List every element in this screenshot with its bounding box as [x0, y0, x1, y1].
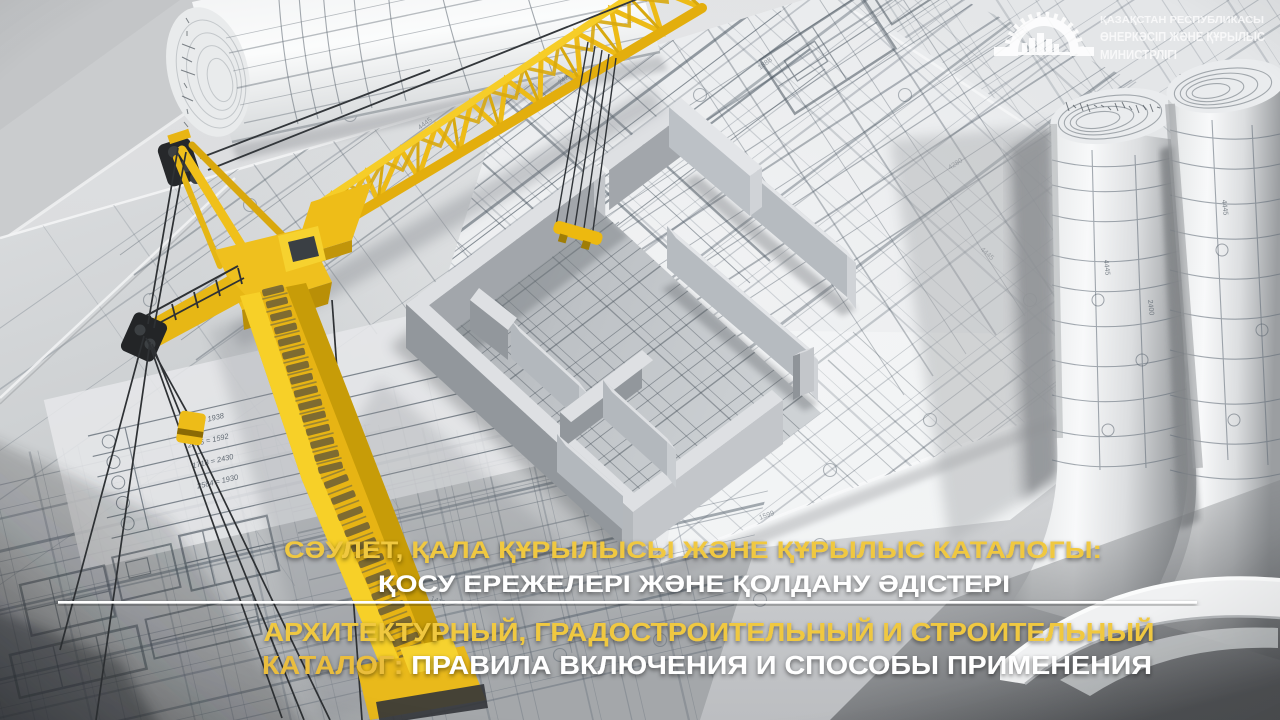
svg-text:ӨНЕРКӘСІП ЖӘНЕ ҚҰРЫЛЫС: ӨНЕРКӘСІП ЖӘНЕ ҚҰРЫЛЫС — [1100, 30, 1265, 44]
svg-text:МИНИСТРЛІГІ: МИНИСТРЛІГІ — [1100, 48, 1177, 62]
svg-text:ҚОСУ ЕРЕЖЕЛЕРІ ЖӘНЕ ҚОЛДАНУ ӘД: ҚОСУ ЕРЕЖЕЛЕРІ ЖӘНЕ ҚОЛДАНУ ӘДІСТЕРІ — [378, 571, 1010, 598]
svg-text:КАТАЛОГ: ПРАВИЛА ВКЛЮЧЕНИЯ И С: КАТАЛОГ: ПРАВИЛА ВКЛЮЧЕНИЯ И СПОСОБЫ ПРИ… — [262, 650, 1152, 680]
svg-text:ҚАЗАҚСТАН РЕСПУБЛИКАСЫ: ҚАЗАҚСТАН РЕСПУБЛИКАСЫ — [1100, 15, 1264, 26]
svg-text:АРХИТЕКТУРНЫЙ, ГРАДОСТРОИТЕЛЬН: АРХИТЕКТУРНЫЙ, ГРАДОСТРОИТЕЛЬНЫЙ И СТРОИ… — [264, 617, 1155, 647]
svg-text:СӘУЛЕТ, ҚАЛА ҚҰРЫЛЫСЫ ЖӘНЕ ҚҰР: СӘУЛЕТ, ҚАЛА ҚҰРЫЛЫСЫ ЖӘНЕ ҚҰРЫЛЫС КАТАЛ… — [284, 537, 1102, 564]
